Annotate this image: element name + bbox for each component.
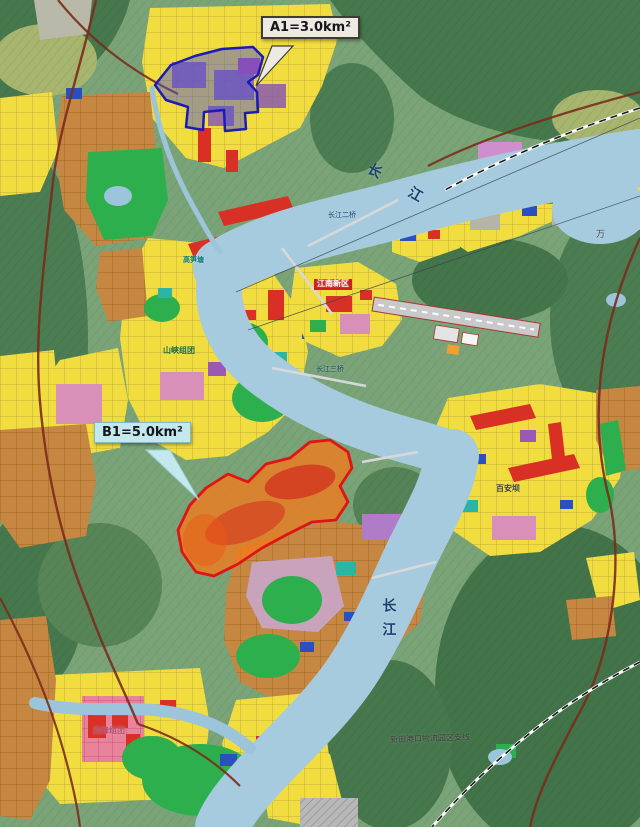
river-label-bottom: 长江 xyxy=(380,598,395,646)
bridge-3-label: 长江三桥 xyxy=(316,366,344,374)
edge-character-label: 万 xyxy=(596,231,605,241)
planning-map: 长 江 长江 长江二桥 长江三桥 江南新区 山峡组团 高笋塘 百安坝 高峰组团 … xyxy=(0,0,640,827)
baianba-label: 百安坝 xyxy=(496,485,520,494)
a1-area-callout: A1=3.0km² xyxy=(261,16,360,39)
b1-area-callout: B1=5.0km² xyxy=(94,422,191,443)
gaofeng-label: 高峰组团 xyxy=(93,727,125,736)
map-canvas xyxy=(0,0,640,827)
jiangnan-district-label: 江南新区 xyxy=(314,279,352,290)
gaosuntang-label: 高笋塘 xyxy=(183,257,204,265)
bridge-2-label: 长江二桥 xyxy=(328,212,356,220)
shanxia-area-label: 山峡组团 xyxy=(163,347,195,356)
